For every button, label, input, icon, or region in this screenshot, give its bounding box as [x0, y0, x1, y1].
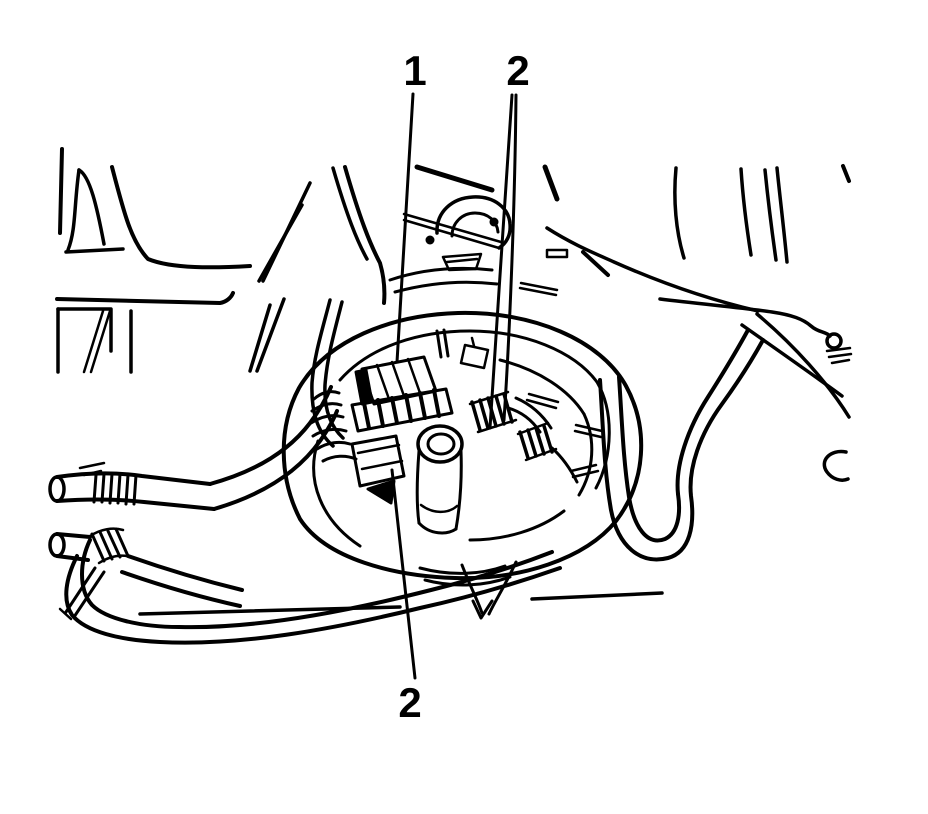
fuel-standpipe: [417, 426, 462, 533]
leader-line-2-top-a: [490, 95, 512, 428]
illustration-canvas: 1 2 2: [0, 0, 928, 814]
callout-label-2-top: 2: [506, 47, 529, 94]
leader-line-1: [397, 94, 413, 362]
electrical-connector: [352, 357, 452, 431]
hose-open-end: [50, 477, 64, 501]
callout-label-1: 1: [403, 47, 426, 94]
hose-open-end: [50, 534, 64, 556]
bolt-hole-dot: [490, 218, 499, 227]
hose-clip-ring: [827, 334, 841, 348]
callout-label-2-bottom: 2: [398, 679, 421, 726]
callout-leaders: [392, 94, 516, 678]
quick-connect-fitting-lower: [352, 436, 404, 503]
quick-connect-fittings-upper: [470, 392, 577, 482]
fuel-pump-module: [311, 330, 577, 533]
line-art-svg: 1 2 2: [0, 0, 928, 814]
bolt-hole-dot: [426, 236, 435, 245]
